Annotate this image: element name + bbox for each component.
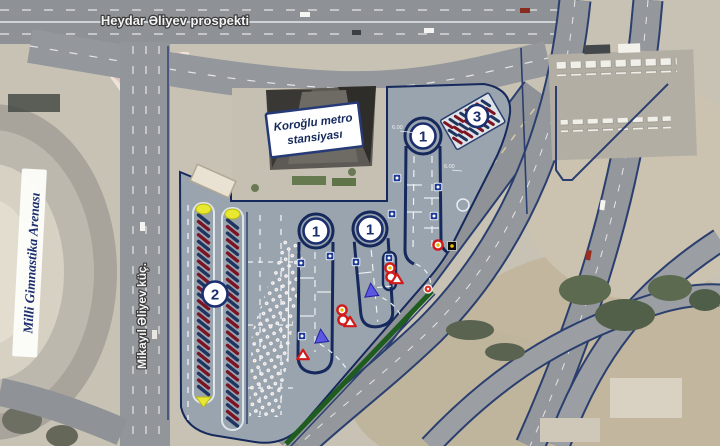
zone-badge-1: 1 — [304, 219, 329, 244]
zone-badge-1: 1 — [411, 124, 436, 149]
svg-text:1: 1 — [312, 223, 320, 240]
truck-lot — [548, 41, 697, 160]
zone-badge-2: 2 — [203, 282, 228, 307]
bus-stop-sign-icon — [388, 210, 396, 218]
zone-badge-1: 1 — [358, 217, 383, 242]
satellite-plan: Koroğlu metro stansiyası 11123 6.006.00 … — [0, 0, 720, 446]
lane-end-oval-icon — [196, 204, 211, 214]
bus-stop-sign-icon — [385, 254, 393, 262]
prohibition-sign-icon — [337, 305, 346, 314]
street-label-left: Mikayıl Əliyev küç. — [135, 263, 149, 369]
signal-box-icon — [448, 242, 457, 251]
svg-text:1: 1 — [419, 128, 427, 145]
bus-stop-sign-icon — [393, 174, 401, 182]
lane-end-oval-icon — [225, 209, 240, 219]
dimension-label: 6.00 — [444, 164, 455, 170]
svg-text:2: 2 — [211, 286, 219, 303]
prohibition-sign-icon — [385, 263, 394, 272]
street-left-road — [120, 42, 170, 446]
bus-stop-sign-icon — [298, 332, 306, 340]
dimension-label: 6.00 — [392, 125, 403, 131]
svg-text:1: 1 — [366, 221, 374, 238]
prohibition-sign-icon — [433, 240, 442, 249]
svg-text:3: 3 — [473, 108, 481, 125]
zone-badge-3: 3 — [466, 105, 488, 127]
bus-stop-sign-icon — [430, 212, 438, 220]
road-point-marker-icon — [424, 285, 432, 293]
bus-stop-sign-icon — [434, 183, 442, 191]
plan-canvas: Koroğlu metro stansiyası 11123 6.006.00 … — [0, 0, 720, 446]
bus-stop-sign-icon — [326, 252, 334, 260]
bus-stop-sign-icon — [352, 258, 360, 266]
street-label-top: Heydar Əliyev prospekti — [101, 13, 249, 28]
bus-stop-sign-icon — [297, 259, 305, 267]
